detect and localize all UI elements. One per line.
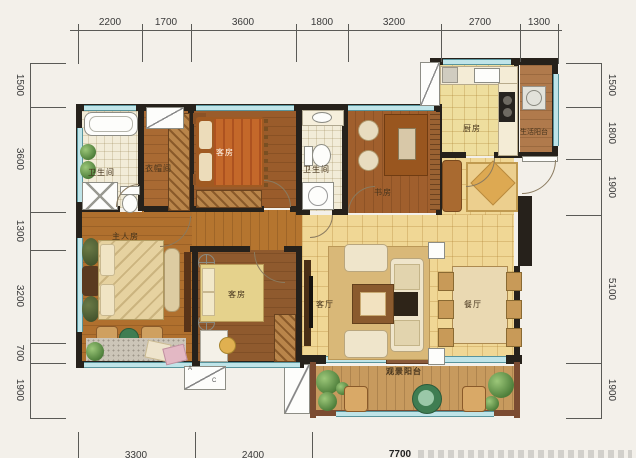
bookshelf (430, 112, 440, 210)
dim-top-4: 3200 (383, 17, 405, 28)
dim-top-5: 2700 (469, 17, 491, 28)
burner (503, 108, 512, 117)
wall-bath2-bottom-b (332, 209, 348, 215)
wall-corridor-c (284, 246, 302, 252)
room-label-cloakroom: 衣帽间 (145, 163, 172, 174)
wall-corridor-b (190, 246, 250, 252)
dim-top-0: 2200 (99, 17, 121, 28)
dim-tick (142, 24, 143, 62)
basin-bowl (526, 90, 542, 106)
dim-top-1: 1700 (155, 17, 177, 28)
dim-line-top (70, 30, 562, 31)
dim-tick (566, 363, 602, 364)
balcony-plant (488, 372, 514, 398)
dim-bottom-2: 7700 (389, 449, 411, 458)
wall-entry-block (518, 196, 532, 266)
balcony-plant (484, 396, 499, 411)
tv (309, 276, 313, 328)
service-balcony-floor (520, 64, 554, 156)
armchair (344, 330, 388, 358)
dim-left-3: 3200 (14, 285, 25, 307)
ac-label-a: A (188, 366, 192, 372)
chaise (164, 248, 180, 312)
guest-top-wardrobe (196, 190, 262, 208)
balcony-table-top (418, 390, 434, 406)
dim-tick (566, 63, 602, 64)
dim-left-1: 3600 (14, 148, 25, 170)
dim-left-0: 1500 (14, 74, 25, 96)
room-label-guest-top: 客房 (216, 147, 234, 158)
dim-tick (566, 107, 602, 108)
dim-right-1: 1800 (606, 122, 617, 144)
dim-tick (566, 159, 602, 160)
wall-kitchen-bottom-a (436, 152, 466, 158)
master-pillow (100, 284, 115, 316)
guest-bottom-pillow (202, 292, 215, 316)
dim-tick (296, 24, 297, 62)
sink (312, 112, 332, 123)
balcony-stool (344, 386, 368, 412)
dim-right-0: 1500 (606, 74, 617, 96)
room-label-master: 主人房 (112, 231, 139, 242)
living-window-right (440, 356, 506, 363)
dim-top-6: 1300 (528, 17, 550, 28)
dim-tick (30, 250, 66, 251)
dim-tick (191, 24, 192, 62)
dining-chair (506, 300, 522, 319)
dining-chair (506, 272, 522, 291)
dim-tick (441, 24, 442, 62)
dim-line-left (30, 63, 31, 418)
room-label-view-balcony: 观景阳台 (386, 366, 422, 377)
room-label-bathroom-mid: 卫生间 (303, 164, 330, 175)
entry-door-arc (522, 160, 556, 194)
monitor (398, 128, 416, 160)
dim-line-right (601, 63, 602, 418)
dining-chair (506, 328, 522, 347)
guest-bottom-pillow (202, 268, 215, 292)
study-chair (358, 120, 379, 141)
room-label-study: 书房 (374, 187, 392, 198)
dim-tick (30, 418, 66, 419)
sofa-cushion (394, 320, 420, 346)
dim-tick (558, 24, 559, 64)
dim-right-2: 1900 (606, 176, 617, 198)
wall-mid-vert-lower (296, 250, 302, 362)
balcony-plant (318, 392, 337, 411)
side-stand (428, 242, 445, 259)
dim-tick (520, 24, 521, 62)
bathroom-plant (80, 144, 96, 160)
guest-bottom-wardrobe (274, 314, 296, 362)
balcony-wall-right (514, 362, 520, 418)
guest-top-pillow (199, 153, 212, 181)
dim-tick (30, 343, 66, 344)
dim-left-2: 1300 (14, 220, 25, 242)
dim-right-4: 1900 (606, 379, 617, 401)
service-balcony-window (553, 74, 559, 146)
dim-tick (30, 107, 66, 108)
room-label-guest-bottom: 客房 (228, 289, 246, 300)
study-chair (358, 150, 379, 171)
dim-tick (566, 418, 602, 419)
master-tv-console (184, 252, 191, 332)
kitchen-window (443, 59, 511, 65)
sofa-cushion (394, 264, 420, 290)
bathtub-basin (89, 116, 133, 132)
master-pillow (100, 244, 115, 276)
utility-closet (284, 364, 310, 414)
guest-chair (219, 337, 236, 354)
dim-tick (30, 363, 66, 364)
armchair (344, 244, 388, 272)
dim-top-2: 3600 (232, 17, 254, 28)
dim-tick (30, 212, 66, 213)
table-tray (360, 292, 386, 316)
guest-top-pillow (199, 121, 212, 149)
room-label-kitchen: 厨房 (463, 123, 481, 134)
dim-left-5: 1900 (14, 379, 25, 401)
dining-chair (438, 272, 454, 291)
room-label-living: 客厅 (316, 299, 334, 310)
kitchen-sink (474, 68, 500, 83)
dim-bottom-0: 3300 (125, 450, 147, 458)
burner (503, 96, 512, 105)
sofa-cushion (394, 292, 418, 316)
master-plant (86, 342, 104, 361)
dim-tick (348, 24, 349, 62)
bathroom-top-window (84, 105, 136, 111)
ac-platform-top (146, 107, 184, 129)
room-label-dining: 餐厅 (464, 299, 482, 310)
dim-tick (30, 63, 66, 64)
room-label-bathroom-top: 卫生间 (88, 167, 115, 178)
fridge (442, 160, 462, 212)
floor-plan-canvas: A C 卫生间 衣帽间 客房 卫生间 书房 厨房 生活阳台 主人房 客房 客厅 … (0, 0, 636, 458)
dim-top-3: 1800 (311, 17, 333, 28)
clipped-watermark (418, 450, 632, 458)
dim-right-3: 5100 (606, 278, 617, 300)
small-appliance (442, 67, 458, 83)
room-label-service-balcony: 生活阳台 (520, 127, 548, 137)
dim-tick (78, 24, 79, 64)
dim-bottom-1: 2400 (242, 450, 264, 458)
dim-left-4: 700 (14, 345, 25, 362)
curtain (264, 117, 268, 187)
dim-tick (566, 215, 602, 216)
dining-chair (438, 300, 454, 319)
ac-label-c: C (212, 378, 216, 384)
guest-top-window (196, 105, 294, 111)
ac-platform-kitchen (420, 62, 440, 106)
dim-tick (78, 432, 79, 458)
wall-master-guest (192, 246, 198, 368)
dining-chair (438, 328, 454, 347)
dim-tick (312, 432, 313, 458)
washer-drum (308, 186, 328, 206)
side-stand (428, 348, 445, 365)
shower (82, 182, 118, 210)
dim-tick (195, 432, 196, 458)
balcony-stool (462, 386, 486, 412)
